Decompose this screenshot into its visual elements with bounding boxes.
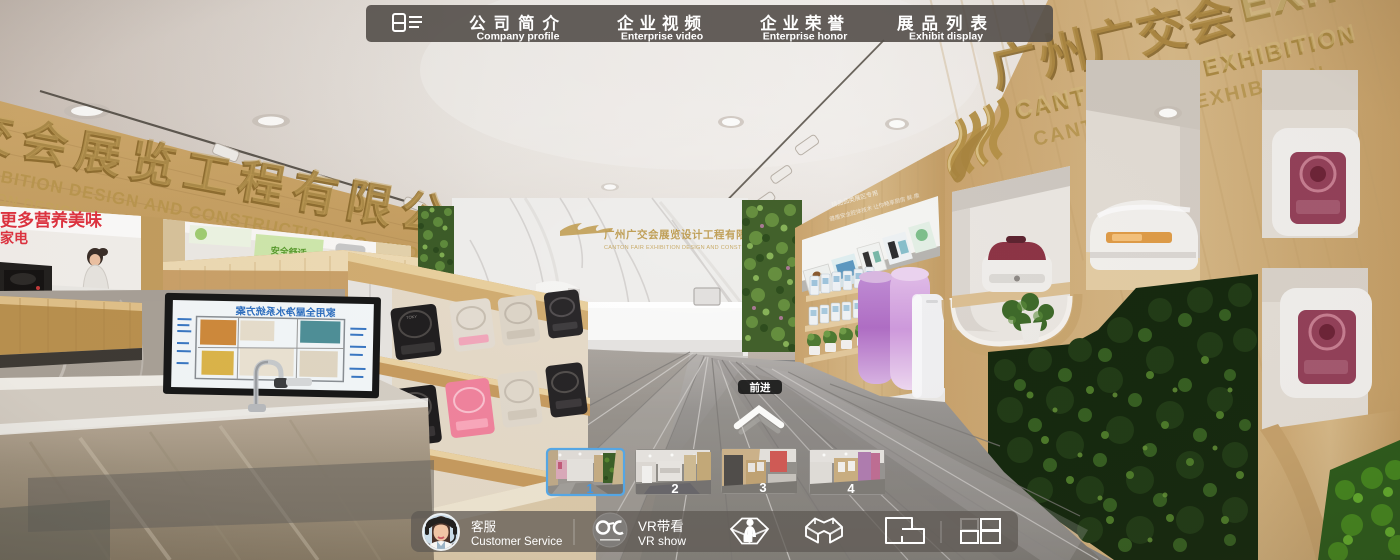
svg-text:VR show: VR show: [638, 534, 686, 548]
svg-text:1: 1: [586, 481, 593, 496]
svg-text:前进: 前进: [750, 381, 771, 394]
svg-text:Company profile: Company profile: [477, 31, 560, 43]
svg-text:客服: 客服: [471, 519, 497, 534]
svg-text:Exhibit display: Exhibit display: [909, 31, 983, 43]
svg-text:Enterprise honor: Enterprise honor: [763, 31, 848, 43]
svg-text:2: 2: [671, 481, 678, 496]
svg-text:Enterprise video: Enterprise video: [621, 31, 703, 43]
svg-text:Customer Service: Customer Service: [471, 536, 562, 548]
svg-text:3: 3: [759, 480, 766, 495]
svg-text:VR带看: VR带看: [638, 519, 684, 534]
svg-text:4: 4: [847, 481, 855, 496]
